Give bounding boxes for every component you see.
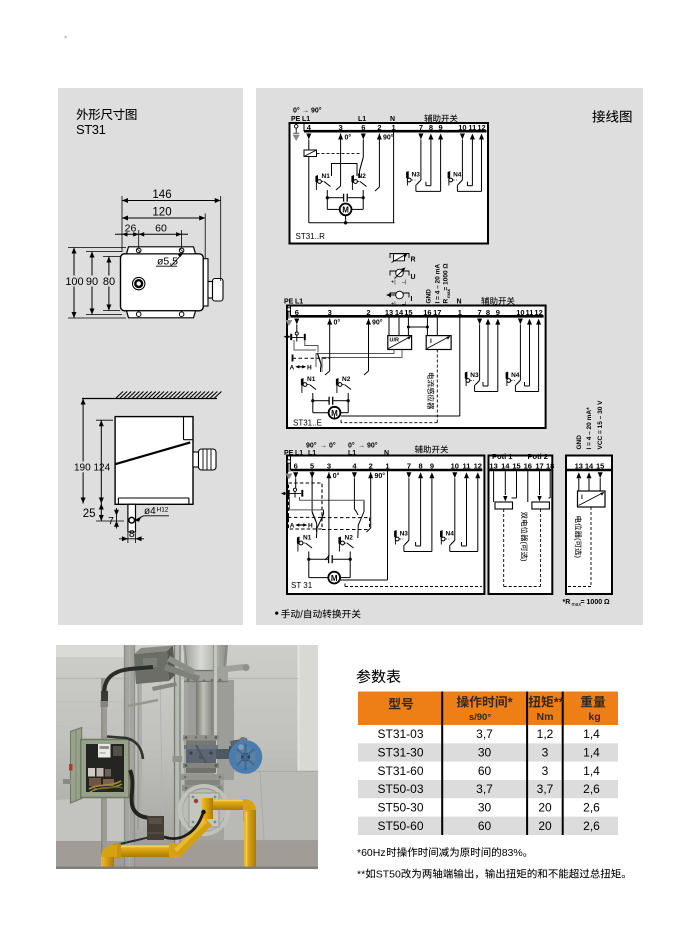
svg-text:ST31-03: ST31-03 (377, 727, 423, 741)
svg-text:A: A (290, 523, 295, 530)
svg-text:–|: –| (402, 280, 407, 286)
svg-text:0°: 0° (345, 134, 352, 142)
svg-text:PE: PE (284, 450, 294, 457)
svg-text:ST50: ST50 (376, 869, 401, 881)
svg-text:8: 8 (486, 308, 490, 317)
svg-text:3: 3 (328, 308, 332, 317)
svg-text:9: 9 (430, 461, 434, 470)
svg-text:+|: +| (391, 302, 396, 308)
svg-text:90°: 90° (306, 442, 317, 450)
svg-text:18: 18 (546, 461, 554, 470)
svg-text:I = 4 – 20 mA: I = 4 – 20 mA (435, 264, 442, 304)
svg-text:15: 15 (596, 461, 604, 470)
svg-text:*R: *R (563, 599, 571, 606)
svg-text:N2: N2 (358, 173, 367, 180)
svg-text:25: 25 (83, 508, 96, 520)
svg-text:*: * (508, 695, 513, 710)
svg-text:8: 8 (129, 528, 135, 540)
svg-text:→: → (320, 443, 327, 450)
svg-text:–|: –| (402, 302, 407, 308)
svg-text:2,6: 2,6 (583, 819, 600, 833)
svg-text:3: 3 (339, 123, 343, 132)
svg-text:26: 26 (125, 223, 137, 235)
svg-text:80: 80 (103, 276, 115, 288)
svg-text:9: 9 (439, 123, 443, 132)
svg-text:14: 14 (501, 461, 510, 470)
svg-text:2: 2 (369, 461, 373, 470)
svg-text:VCC = 15 – 30 V: VCC = 15 – 30 V (597, 400, 604, 450)
svg-text:N1: N1 (322, 173, 331, 180)
svg-text:0°: 0° (329, 442, 336, 450)
svg-text:6: 6 (295, 308, 299, 317)
svg-text:3,7: 3,7 (476, 727, 493, 741)
svg-text:12: 12 (534, 308, 542, 317)
svg-text:12: 12 (474, 461, 482, 470)
svg-text:8: 8 (419, 461, 423, 470)
svg-text:ST50-03: ST50-03 (377, 782, 423, 796)
svg-text:0°: 0° (334, 319, 341, 327)
svg-text:13: 13 (385, 308, 393, 317)
svg-text:190: 190 (74, 463, 91, 474)
svg-text:90°: 90° (383, 134, 394, 142)
svg-text:Poti 1: Poti 1 (492, 452, 512, 461)
svg-text:ST50-60: ST50-60 (377, 819, 423, 833)
svg-text:11: 11 (463, 461, 471, 470)
svg-text:R: R (443, 299, 450, 304)
svg-text:6: 6 (361, 123, 365, 132)
svg-text:16: 16 (524, 461, 532, 470)
svg-text:kg: kg (588, 711, 600, 723)
svg-text:1: 1 (392, 123, 396, 132)
svg-text:ST31..R: ST31..R (296, 232, 326, 241)
svg-text:7: 7 (407, 461, 411, 470)
svg-text:2,6: 2,6 (583, 801, 600, 815)
svg-text:0°: 0° (293, 107, 300, 115)
svg-text:83%: 83% (502, 847, 523, 859)
svg-text:90°: 90° (311, 107, 322, 115)
svg-text:Nm: Nm (537, 711, 554, 723)
svg-text:N2: N2 (342, 376, 351, 383)
svg-text:12: 12 (477, 123, 485, 132)
svg-text:U: U (411, 274, 416, 281)
svg-text:*60Hz: *60Hz (357, 847, 386, 859)
svg-text:N4: N4 (446, 531, 455, 538)
svg-text:N3: N3 (400, 531, 409, 538)
svg-text:I: I (581, 494, 583, 501)
svg-text:L1: L1 (295, 450, 303, 457)
svg-text:60: 60 (155, 223, 167, 235)
svg-text:2: 2 (377, 123, 381, 132)
svg-text:5: 5 (310, 461, 314, 470)
svg-text:M: M (331, 574, 338, 583)
svg-text:13: 13 (575, 461, 583, 470)
svg-text:ST31-30: ST31-30 (377, 746, 423, 760)
svg-text:1,4: 1,4 (583, 727, 600, 741)
svg-text:90°: 90° (372, 319, 383, 327)
svg-text:U/R: U/R (390, 338, 400, 344)
svg-text:14: 14 (585, 461, 594, 470)
svg-text:146: 146 (152, 189, 171, 201)
svg-text:3,7: 3,7 (537, 782, 554, 796)
svg-text:N2: N2 (345, 535, 354, 542)
svg-text:3: 3 (542, 746, 549, 760)
svg-text:1: 1 (458, 308, 462, 317)
svg-text:H: H (308, 523, 313, 530)
svg-text:1,4: 1,4 (583, 764, 600, 778)
svg-text:0°: 0° (348, 442, 355, 450)
svg-text:ST31-60: ST31-60 (377, 764, 423, 778)
svg-text:N4: N4 (453, 172, 462, 179)
svg-text:17: 17 (535, 461, 543, 470)
svg-text:H12: H12 (157, 507, 169, 514)
svg-text:20: 20 (538, 819, 552, 833)
svg-text:90: 90 (86, 276, 98, 288)
svg-text:/: / (300, 610, 303, 621)
svg-text:= 1000 Ω: = 1000 Ω (581, 599, 611, 606)
svg-text:s/90°: s/90° (469, 712, 491, 723)
svg-text:17: 17 (433, 308, 441, 317)
svg-text:1,4: 1,4 (583, 746, 600, 760)
svg-text:GND: GND (576, 435, 583, 450)
svg-text:16: 16 (423, 308, 431, 317)
svg-text:N3: N3 (412, 172, 421, 179)
svg-text:ST50-30: ST50-30 (377, 801, 423, 815)
svg-text:PE: PE (291, 116, 301, 123)
svg-text:120: 120 (152, 207, 171, 219)
svg-text:**: ** (357, 869, 365, 881)
svg-text:**: ** (554, 695, 564, 710)
svg-text:60: 60 (478, 819, 492, 833)
svg-text:15: 15 (404, 308, 412, 317)
svg-text:2: 2 (366, 308, 370, 317)
svg-text:→: → (302, 108, 309, 115)
svg-text:13: 13 (489, 461, 497, 470)
svg-text:11: 11 (468, 123, 476, 132)
svg-text:90°: 90° (375, 472, 386, 480)
svg-text:Poti 2: Poti 2 (528, 452, 548, 461)
svg-text:+|: +| (391, 280, 396, 286)
svg-text:→: → (358, 443, 365, 450)
svg-text:90°: 90° (367, 442, 378, 450)
svg-text:L1: L1 (295, 299, 303, 306)
svg-text:0°: 0° (333, 472, 340, 480)
svg-text:3,7: 3,7 (476, 782, 493, 796)
svg-text:9: 9 (496, 308, 500, 317)
svg-text:1: 1 (385, 461, 389, 470)
svg-text:M: M (342, 206, 349, 215)
svg-text:7: 7 (478, 308, 482, 317)
svg-text:7: 7 (419, 123, 423, 132)
svg-text:N3: N3 (470, 372, 479, 379)
svg-text:124: 124 (93, 463, 110, 474)
svg-text:15: 15 (512, 461, 520, 470)
svg-text:I = 4 – 20 mA*: I = 4 – 20 mA* (586, 407, 593, 450)
svg-text:1,2: 1,2 (537, 727, 554, 741)
svg-text:A: A (290, 364, 295, 371)
svg-text:I: I (430, 338, 432, 345)
svg-text:PE: PE (284, 299, 294, 306)
svg-text:= 1000 Ω: = 1000 Ω (443, 263, 450, 290)
svg-text:20: 20 (538, 801, 552, 815)
svg-text:L1: L1 (308, 450, 316, 457)
svg-text:60: 60 (478, 764, 492, 778)
svg-text:8: 8 (429, 123, 433, 132)
svg-text:10: 10 (458, 123, 466, 132)
svg-text:ST 31: ST 31 (291, 581, 313, 590)
svg-text:I: I (411, 296, 413, 303)
svg-text:2,6: 2,6 (583, 782, 600, 796)
svg-text:N1: N1 (303, 535, 312, 542)
svg-text:N: N (457, 299, 462, 306)
svg-text:GND: GND (426, 289, 433, 304)
svg-text:30: 30 (478, 746, 492, 760)
svg-text:R: R (411, 257, 416, 264)
svg-text:ST31: ST31 (76, 122, 106, 137)
svg-text:3: 3 (542, 764, 549, 778)
svg-text:ST31..E: ST31..E (293, 419, 322, 428)
svg-text:10: 10 (516, 308, 524, 317)
svg-text:L1: L1 (348, 450, 356, 457)
svg-text:H: H (307, 364, 312, 371)
svg-text:100: 100 (65, 276, 83, 288)
svg-text:30: 30 (478, 801, 492, 815)
svg-text:6: 6 (294, 461, 298, 470)
svg-text:7: 7 (108, 515, 114, 527)
svg-text:3: 3 (327, 461, 331, 470)
svg-text:14: 14 (395, 308, 404, 317)
svg-text:11: 11 (526, 308, 534, 317)
svg-text:N: N (384, 450, 389, 457)
svg-text:N4: N4 (511, 372, 520, 379)
svg-text:N1: N1 (307, 376, 316, 383)
svg-text:10: 10 (451, 461, 459, 470)
